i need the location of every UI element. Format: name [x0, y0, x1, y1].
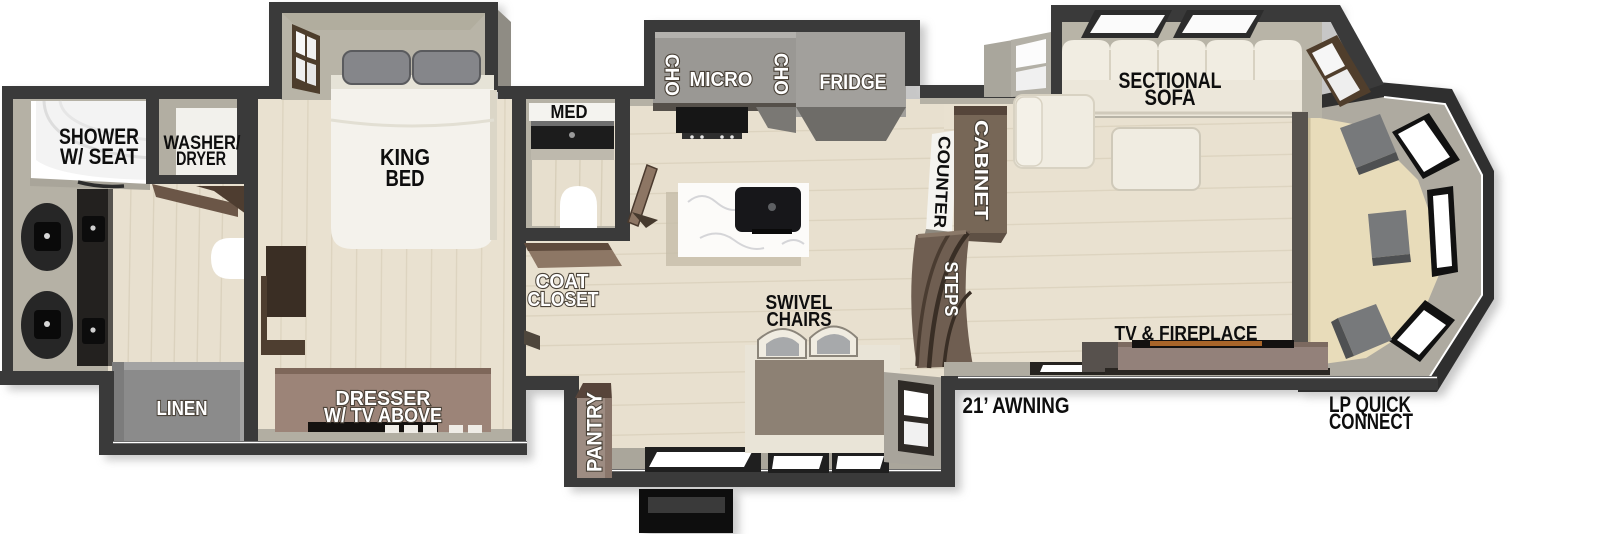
- svg-text:CLOSET: CLOSET: [528, 289, 599, 311]
- svg-text:W/ TV ABOVE: W/ TV ABOVE: [324, 405, 442, 427]
- svg-text:PANTRY: PANTRY: [584, 392, 607, 472]
- svg-text:SOFA: SOFA: [1145, 85, 1196, 110]
- svg-text:CHO: CHO: [661, 54, 682, 96]
- svg-text:CABINET: CABINET: [971, 120, 991, 220]
- svg-text:21’ AWNING: 21’ AWNING: [963, 393, 1070, 418]
- svg-text:CHAIRS: CHAIRS: [767, 309, 832, 331]
- svg-text:W/ SEAT: W/ SEAT: [60, 144, 138, 169]
- svg-text:TV & FIREPLACE: TV & FIREPLACE: [1115, 323, 1258, 345]
- svg-text:MICRO: MICRO: [690, 69, 753, 91]
- svg-text:STEPS: STEPS: [941, 262, 961, 317]
- svg-text:FRIDGE: FRIDGE: [820, 71, 887, 94]
- svg-text:MED: MED: [551, 102, 588, 122]
- svg-text:CONNECT: CONNECT: [1329, 409, 1413, 434]
- svg-text:CHO: CHO: [770, 53, 791, 95]
- svg-text:BED: BED: [386, 165, 425, 191]
- svg-text:LINEN: LINEN: [157, 398, 208, 420]
- svg-text:DRYER: DRYER: [176, 149, 226, 170]
